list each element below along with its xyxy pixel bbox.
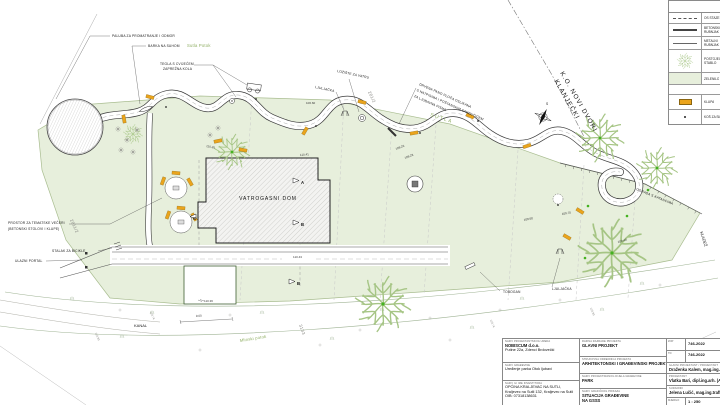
scale-value: 1 : 250 — [686, 398, 720, 405]
dashed-line-symbol — [669, 13, 702, 23]
td-row: TD 746-2022 BROJ — [667, 351, 720, 363]
chief-designer-row: GLAVNI PROJEKTANT / PROJEKTANT Draženka … — [667, 363, 720, 375]
dim-9m: 9.00 — [196, 314, 202, 318]
drawing-title-cell: NAZIV GRAFIČKOG PRIKAZA SITUACIJA GRAĐEV… — [580, 389, 666, 405]
title-block-col3: ZOP 746-2022 DATUM TD 746-2022 BROJ GLAV… — [667, 339, 720, 405]
investor-cell: NAZIV ILI IME INVESTITORA OPĆINA KRALJEV… — [503, 381, 579, 405]
parcel-bottom: 3133 — [298, 324, 306, 336]
thin-line-symbol — [669, 37, 702, 49]
legend-row-stablo: POSTOJEĆE STABLO — [669, 50, 720, 73]
title-block: NAZIV PROJEKTANTSKOG UREDA NOBISCUM d.o.… — [502, 338, 720, 405]
investor-oib: OIB: 07318138631 — [505, 394, 577, 399]
building-name-cell: NAZIV GRAĐEVINE Uređenje parka Otok ljub… — [503, 363, 579, 381]
legend-row-os: OS STAZE — [669, 13, 720, 24]
chief-designer-name: Draženka Kalem, mag.ing.arh. — [669, 367, 720, 372]
elev: 110.90 — [94, 332, 101, 342]
legend-row-betonski: BETONSKI RUBNJAK — [669, 24, 720, 37]
project-level-cell: RAZINA RAZRADE PROJEKTA GLAVNI PROJEKT — [580, 339, 666, 357]
label-barka: BARKA NA SUHOM — [148, 44, 180, 48]
elev: 110.36 — [204, 299, 213, 303]
legend-label-line2: STABLO — [704, 61, 720, 65]
title-block-col2: RAZINA RAZRADE PROJEKTA GLAVNI PROJEKT S… — [580, 339, 667, 405]
legend: LEGENDA OS STAZE BETONSKI RUBNJAK METALN… — [668, 0, 720, 125]
label-ljuljacka-top: LJULJAČKA — [315, 84, 336, 93]
label-kladez: KLADEŽ — [699, 231, 709, 248]
building-label: VATROGASNI DOM — [239, 196, 297, 202]
legend-row-zelenilo: ZELENILO — [669, 73, 720, 85]
project-part: PARK — [582, 378, 664, 383]
legend-row-metalni: METALNI RUBNJAK — [669, 37, 720, 50]
legend-label: POSTOJEĆE STABLO — [702, 57, 720, 65]
label-prostor-2: (BETONSKI STOLOVI I KLUPE) — [8, 227, 59, 231]
collaborator-row: SURADNIK Jelena Lučić, mag.ing.traff. — [667, 386, 720, 398]
zop-number: 746-2022 — [686, 339, 720, 350]
title-block-col1: NAZIV PROJEKTANTSKOG UREDA NOBISCUM d.o.… — [503, 339, 580, 405]
legend-label: OS STAZE — [702, 16, 720, 20]
legend-label: KLUPA — [702, 100, 714, 104]
legend-label: BETONSKI RUBNJAK — [702, 26, 720, 34]
label-sutla-potok: Sutla Potok — [187, 43, 211, 48]
legend-title: LEGENDA — [669, 1, 720, 13]
gazebo-symbol — [407, 176, 423, 192]
fire-station-building: VATROGASNI DOM — [198, 158, 330, 243]
legend-label: ZELENILO — [702, 77, 719, 81]
cell-label: TD — [667, 351, 686, 362]
park-area — [38, 96, 700, 304]
label-mlinski-potok: Mlinski potok — [239, 334, 267, 343]
project-part-cell: NAZIV PROJEKTIRANOG DIJELA GRAĐEVINE PAR… — [580, 374, 666, 389]
designer-name: Vlatka Bari, dipl.ing.arh. (A — [669, 378, 720, 383]
thick-line-symbol — [669, 24, 702, 36]
label-tobogan: TOBOGAN — [503, 290, 521, 294]
tree-icon — [669, 50, 702, 72]
flower-pot-symbol — [230, 99, 235, 104]
legend-row-kos: KOŠ ZA SMEĆE — [669, 110, 720, 124]
designer-office-cell: NAZIV PROJEKTANTSKOG UREDA NOBISCUM d.o.… — [503, 339, 579, 363]
section-marker-b2: B — [297, 281, 300, 286]
label-ulazni-portal: ULAZNI PORTAL — [15, 259, 42, 263]
elev: 106.60 — [306, 101, 316, 105]
designer-row: PROJEKTANT Vlatka Bari, dipl.ing.arh. (A — [667, 374, 720, 386]
north-label: S — [546, 102, 549, 106]
label-stalak: STALAK ZA BICIKLE — [52, 249, 86, 253]
section-marker-c: C — [193, 216, 196, 221]
td-number: 746-2022 — [686, 351, 720, 362]
label-prostor-1: PROSTOR ZA TEMATSKE VEČERI — [8, 220, 65, 225]
label-loziste: LOŽIŠTE ZA VATRU — [337, 68, 370, 80]
cart-symbol — [246, 83, 261, 93]
planting-circle — [553, 194, 563, 204]
legend-label-line2: RUBNJAK — [704, 30, 720, 34]
section-marker-a: A — [301, 180, 304, 185]
dot-symbol — [669, 110, 702, 124]
fire-pit-symbol — [359, 115, 366, 122]
zop-row: ZOP 746-2022 DATUM — [667, 339, 720, 351]
elev: 110.74 — [489, 319, 496, 329]
label-paluba: PALUBA ZA PROMATRANJE I ODMOR — [112, 34, 175, 38]
elev: 110.90 — [589, 307, 596, 317]
legend-label: METALNI RUBNJAK — [702, 39, 719, 47]
north-compass: S — [531, 102, 555, 129]
designer-office-address: Putine 22a, Zdenci Brdovečki — [505, 348, 577, 353]
label-ljuljacka-bottom: LJULJAČKA — [552, 286, 572, 291]
legend-row-klupa: KLUPA — [669, 95, 720, 110]
label-zaprezna: ZAPREŽNA KOLA — [163, 66, 193, 71]
collaborator-name: Jelena Lučić, mag.ing.traff. — [669, 390, 720, 395]
building-name: Uređenje parka Otok ljubavi — [505, 367, 577, 372]
legend-section-oprema: OPREMA — [669, 85, 720, 95]
label-tegla: TEGLA S CVIJEĆEM — [160, 61, 194, 66]
legend-label: KOŠ ZA SMEĆE — [702, 115, 720, 119]
label-kanal: KANAL — [134, 323, 148, 328]
elev: 110.43 — [293, 255, 302, 259]
plateau — [180, 266, 236, 324]
observation-deck — [47, 99, 103, 155]
cell-label: MJERILO — [667, 398, 686, 405]
elev: 110.74 — [149, 311, 156, 321]
bench-swatch — [669, 95, 702, 109]
scale-row: MJERILO 1 : 250 LIST — [667, 398, 720, 405]
cell-label: ZOP — [667, 339, 686, 350]
project-discipline: ARHITEKTONSKI I GRAĐEVINSKI PROJEKT — [582, 361, 664, 366]
project-level: GLAVNI PROJEKT — [582, 343, 664, 348]
section-marker-b: B — [301, 222, 304, 227]
legend-label-line2: RUBNJAK — [704, 43, 719, 47]
drawing-title-line2: NA GSSS — [582, 398, 664, 403]
project-discipline-cell: STRUKOVNA ODREDNICA PROJEKTA ARHITEKTONS… — [580, 357, 666, 374]
elev: 110.41 — [300, 152, 310, 157]
site-plan-sheet: VATROGASNI DOM — [0, 0, 720, 405]
green-area-swatch — [669, 73, 702, 84]
parcel-top: 281/2 — [367, 90, 377, 103]
